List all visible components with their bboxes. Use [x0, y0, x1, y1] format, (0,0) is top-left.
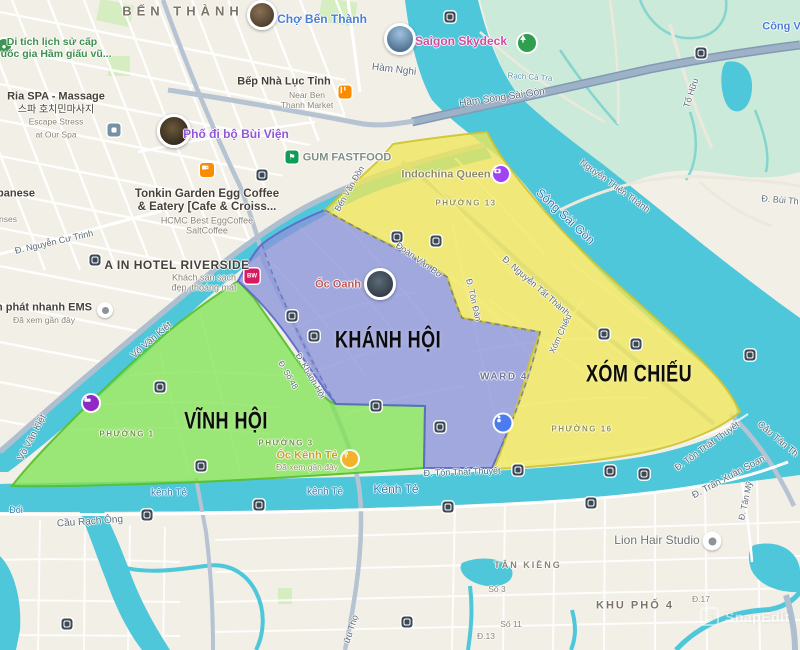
- transit-station-icon[interactable]: [639, 469, 650, 480]
- transit-station-icon[interactable]: [605, 466, 616, 477]
- transit-station-icon[interactable]: [287, 311, 298, 322]
- transit-station-icon[interactable]: [599, 329, 610, 340]
- transit-station-icon[interactable]: [513, 465, 524, 476]
- transit-station-icon[interactable]: [445, 12, 456, 23]
- transit-station-icon[interactable]: [586, 498, 597, 509]
- transit-station-icon[interactable]: [142, 510, 153, 521]
- cafe-icon[interactable]: [200, 163, 214, 177]
- transit-station-icon[interactable]: [371, 401, 382, 412]
- transit-station-icon[interactable]: [392, 232, 403, 243]
- transit-station-icon[interactable]: [696, 48, 707, 59]
- transit-station-icon[interactable]: [745, 350, 756, 361]
- transit-station-icon[interactable]: [631, 339, 642, 350]
- transit-station-icon[interactable]: [257, 170, 268, 181]
- person-poi-icon[interactable]: [495, 415, 512, 432]
- transit-station-icon[interactable]: [196, 461, 207, 472]
- bw-hotel-icon[interactable]: BW: [245, 269, 260, 284]
- indochina-camera-icon[interactable]: [493, 166, 509, 182]
- gum-fastfood-icon[interactable]: ⚑: [286, 151, 299, 164]
- restaurant-icon[interactable]: [339, 86, 352, 99]
- transit-station-icon[interactable]: [62, 619, 73, 630]
- transit-station-icon[interactable]: [402, 617, 413, 628]
- snapedit-logo-icon: S: [700, 607, 719, 626]
- transit-station-icon[interactable]: [155, 382, 166, 393]
- bui-vien-photo-marker[interactable]: [157, 114, 191, 148]
- saigon-skydeck-photo-marker[interactable]: [384, 23, 416, 55]
- lion-hair-marker[interactable]: [703, 532, 722, 551]
- map-canvas[interactable]: ● ⚑ BW KHÁNH HỘI VĨNH HỘI: [0, 0, 800, 650]
- ems-marker[interactable]: [97, 302, 113, 318]
- cho-ben-thanh-photo-marker[interactable]: [247, 0, 277, 30]
- lodging-icon[interactable]: [83, 395, 99, 411]
- transit-station-icon[interactable]: [435, 422, 446, 433]
- transit-station-icon[interactable]: [443, 502, 454, 513]
- transit-station-icon[interactable]: [431, 236, 442, 247]
- snapedit-watermark: S SnapEdit: [700, 607, 790, 626]
- oc-kenh-te-icon[interactable]: [342, 451, 358, 467]
- park-tree-icon[interactable]: [518, 34, 536, 52]
- transit-station-icon[interactable]: [309, 331, 320, 342]
- oc-oanh-photo-marker[interactable]: [364, 268, 396, 300]
- transit-station-icon[interactable]: [254, 500, 265, 511]
- spa-icon[interactable]: [108, 124, 121, 137]
- transit-station-icon[interactable]: [90, 255, 101, 266]
- map-geometry: [0, 0, 800, 650]
